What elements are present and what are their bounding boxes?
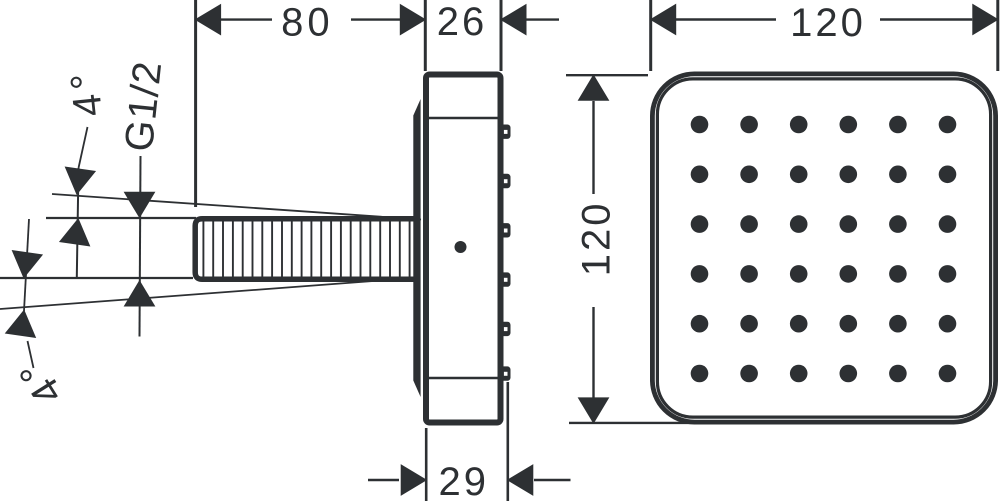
svg-text:29: 29 [439, 460, 490, 501]
svg-text:120: 120 [575, 201, 619, 277]
svg-text:80: 80 [281, 0, 334, 44]
svg-text:G1/2: G1/2 [117, 59, 170, 154]
svg-text:4°: 4° [8, 348, 71, 412]
svg-text:4°: 4° [62, 66, 111, 119]
svg-text:26: 26 [437, 0, 488, 44]
svg-text:120: 120 [790, 1, 866, 45]
